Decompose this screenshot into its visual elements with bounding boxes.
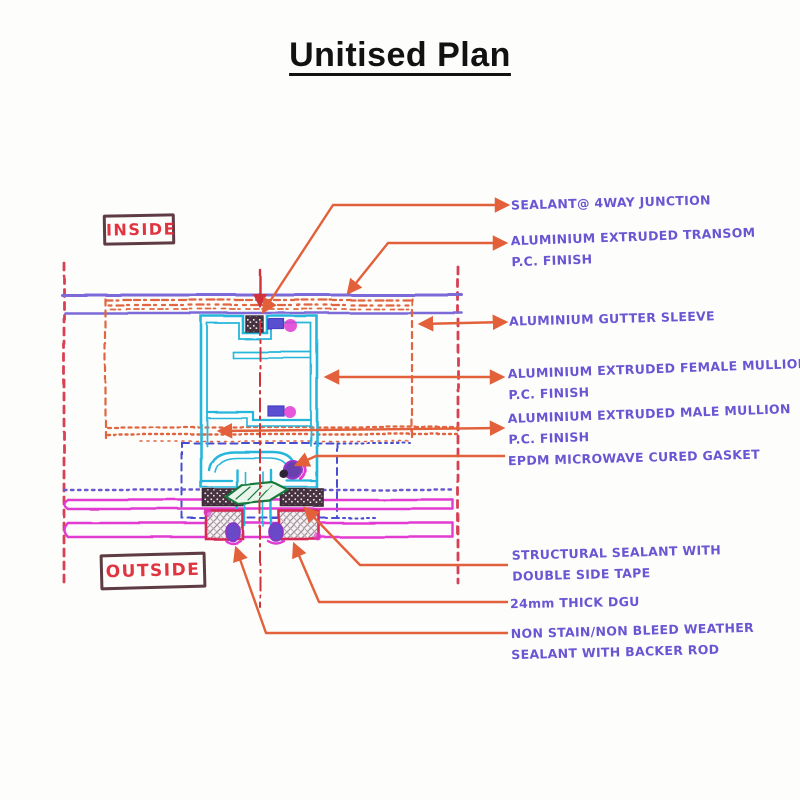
annotation-line: 24mm THICK DGU xyxy=(510,591,640,614)
leader-dgu xyxy=(294,544,508,602)
annotation-structural-sealant: STRUCTURAL SEALANT WITH DOUBLE SIDE TAPE xyxy=(511,539,721,586)
annotation-dgu: 24mm THICK DGU xyxy=(510,591,640,614)
outside-label: OUTSIDE xyxy=(105,560,200,582)
leader-weather-sealant xyxy=(236,548,508,633)
leader-gutter-sleeve xyxy=(420,322,506,324)
weather-sealant-feet xyxy=(226,523,284,544)
annotation-transom: ALUMINIUM EXTRUDED TRANSOM P.C. FINISH xyxy=(510,222,756,273)
annotation-weather-sealant: NON STAIN/NON BLEED WEATHER SEALANT WITH… xyxy=(510,617,754,665)
leader-male-mullion xyxy=(219,428,503,431)
transom-hatch xyxy=(106,300,410,309)
inside-label: INSIDE xyxy=(106,219,176,239)
glass-lines xyxy=(65,500,454,537)
outside-label-box: OUTSIDE xyxy=(100,552,207,591)
inside-label-box: INSIDE xyxy=(103,213,176,245)
leader-epdm-gasket xyxy=(296,456,505,465)
leader-transom xyxy=(348,243,506,293)
drawing-sheet: Unitised Plan xyxy=(0,0,800,800)
diagram-canvas xyxy=(0,0,800,800)
